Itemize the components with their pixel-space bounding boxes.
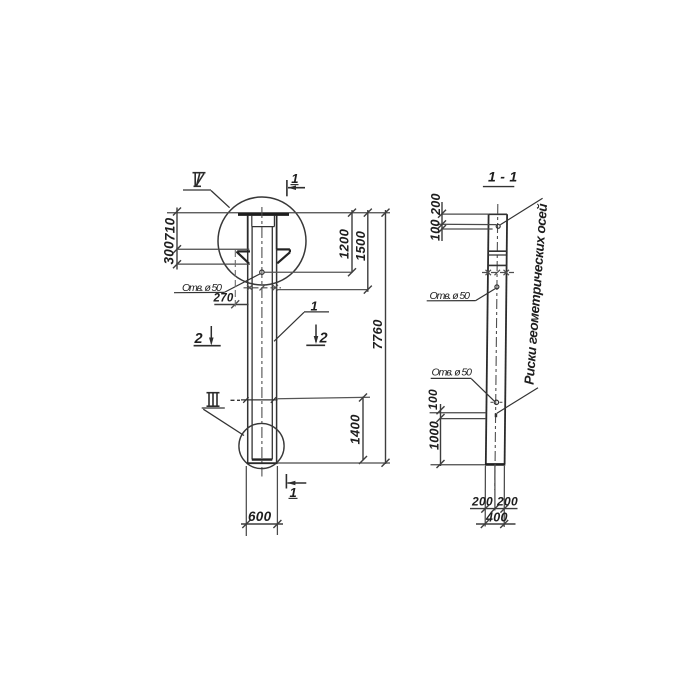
svg-text:1: 1: [291, 171, 299, 186]
svg-text:1400: 1400: [348, 414, 363, 445]
svg-text:1 - 1: 1 - 1: [488, 169, 518, 185]
svg-text:400: 400: [485, 511, 508, 525]
svg-text:200: 200: [496, 495, 518, 509]
svg-text:7760: 7760: [370, 319, 385, 350]
svg-text:270: 270: [213, 293, 234, 305]
svg-text:Отв. ø 50: Отв. ø 50: [432, 367, 473, 379]
svg-text:300: 300: [162, 241, 177, 265]
svg-text:200: 200: [471, 495, 493, 509]
svg-text:600: 600: [248, 509, 272, 524]
svg-text:1000: 1000: [428, 421, 442, 450]
svg-text:100: 100: [426, 389, 440, 410]
svg-text:1: 1: [290, 485, 298, 500]
svg-text:100: 100: [429, 219, 443, 241]
svg-text:1200: 1200: [337, 228, 352, 259]
svg-text:1500: 1500: [353, 230, 368, 261]
svg-text:2: 2: [319, 331, 328, 347]
svg-text:2: 2: [194, 331, 203, 347]
svg-text:710: 710: [163, 217, 178, 241]
svg-text:200: 200: [429, 193, 443, 216]
